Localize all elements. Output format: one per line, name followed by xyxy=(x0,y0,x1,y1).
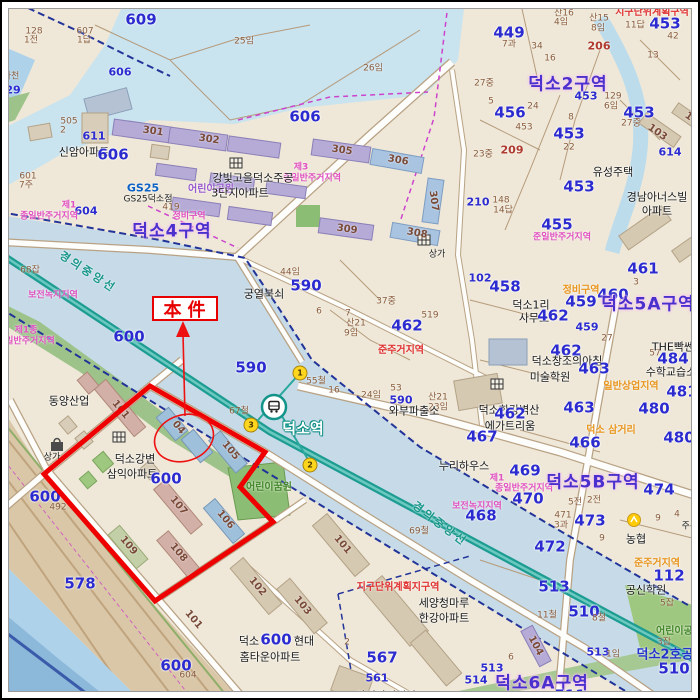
subject-parcel-outline xyxy=(44,386,273,601)
annotation-arrow-head xyxy=(176,321,190,337)
cadastral-map: 6096071답1281전606하천295052611신암아파트6066017주… xyxy=(0,0,700,700)
subject-building-circle xyxy=(148,407,219,469)
annotation-layer xyxy=(0,0,700,700)
subject-annotation-box: 本件 xyxy=(152,296,218,321)
